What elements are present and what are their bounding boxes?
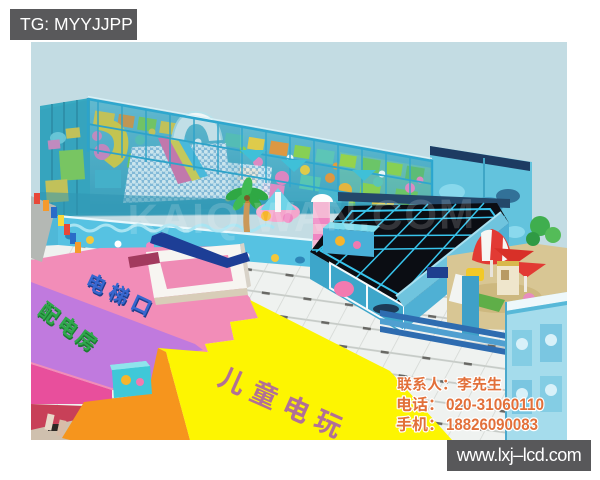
svg-text:18826090083: 18826090083 bbox=[446, 416, 538, 434]
svg-text:KAIQIWAN.COM: KAIQIWAN.COM bbox=[127, 190, 476, 243]
svg-text:020-31060110: 020-31060110 bbox=[446, 396, 544, 414]
